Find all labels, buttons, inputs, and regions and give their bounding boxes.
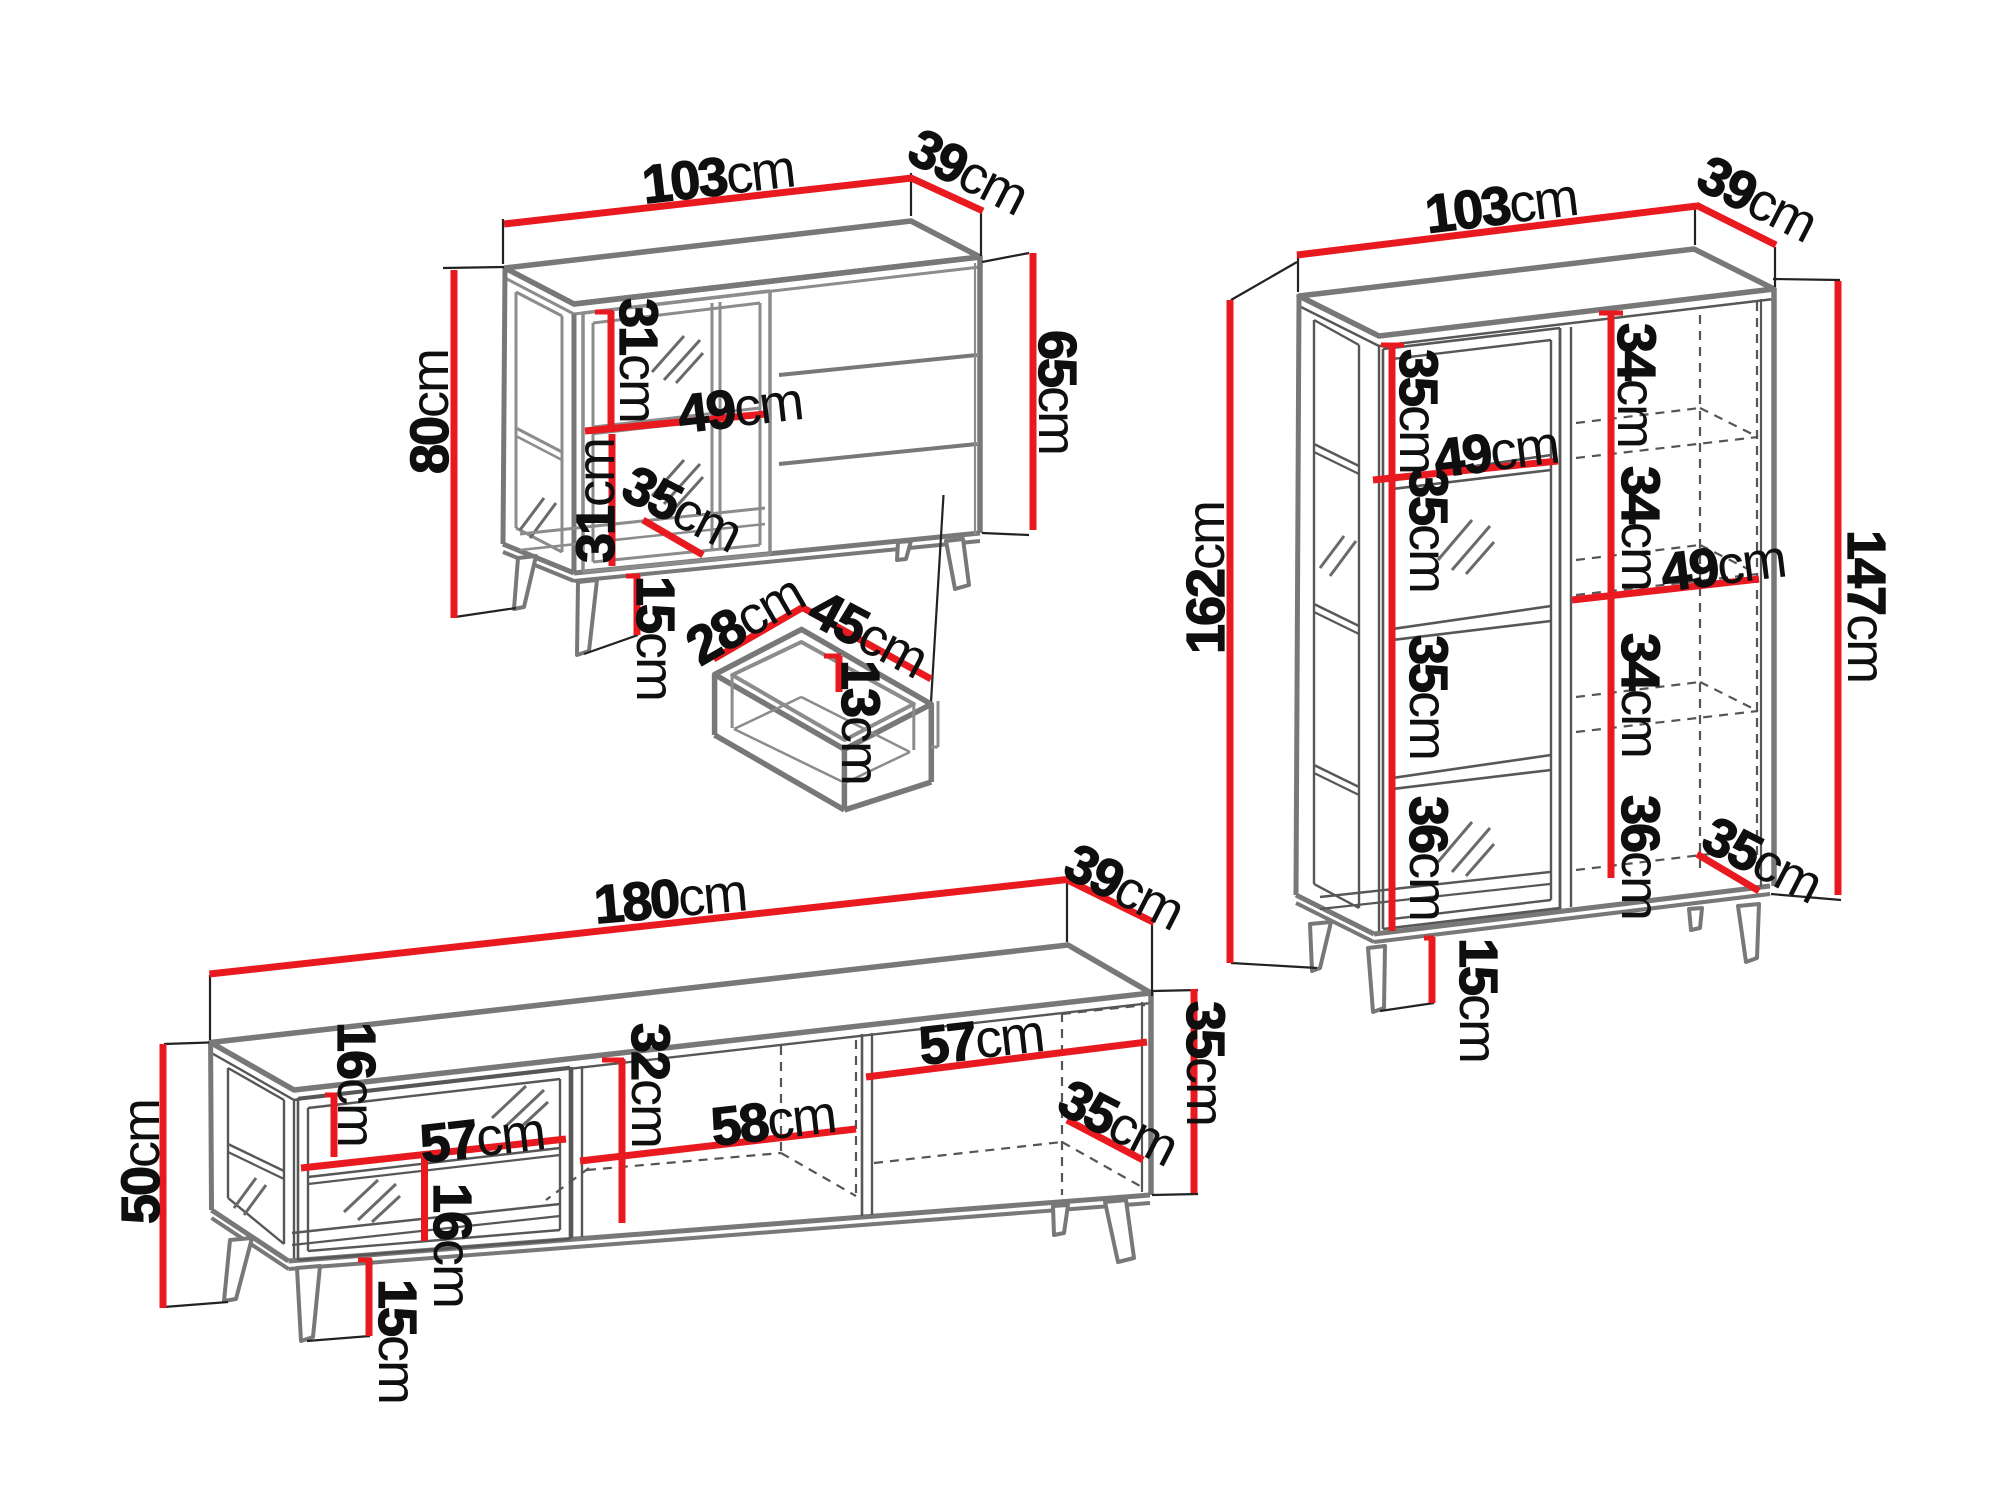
svg-text:35cm: 35cm [1175,1001,1235,1125]
svg-text:36cm: 36cm [1610,795,1670,919]
svg-text:65cm: 65cm [1027,330,1087,454]
svg-text:15cm: 15cm [367,1279,427,1403]
svg-text:36cm: 36cm [1398,796,1458,920]
svg-text:34cm: 34cm [1610,633,1670,757]
svg-text:35cm: 35cm [1398,635,1458,759]
svg-text:15cm: 15cm [1448,938,1508,1062]
svg-text:13cm: 13cm [830,660,890,784]
svg-text:15cm: 15cm [625,576,685,700]
svg-text:80cm: 80cm [400,350,460,474]
svg-text:32cm: 32cm [620,1023,680,1147]
svg-text:162cm: 162cm [1176,502,1236,654]
svg-text:34cm: 34cm [1606,323,1666,447]
svg-text:31cm: 31cm [608,298,668,422]
svg-text:16cm: 16cm [422,1183,482,1307]
svg-text:147cm: 147cm [1836,530,1896,682]
svg-text:16cm: 16cm [326,1022,386,1146]
svg-text:50cm: 50cm [111,1100,171,1224]
